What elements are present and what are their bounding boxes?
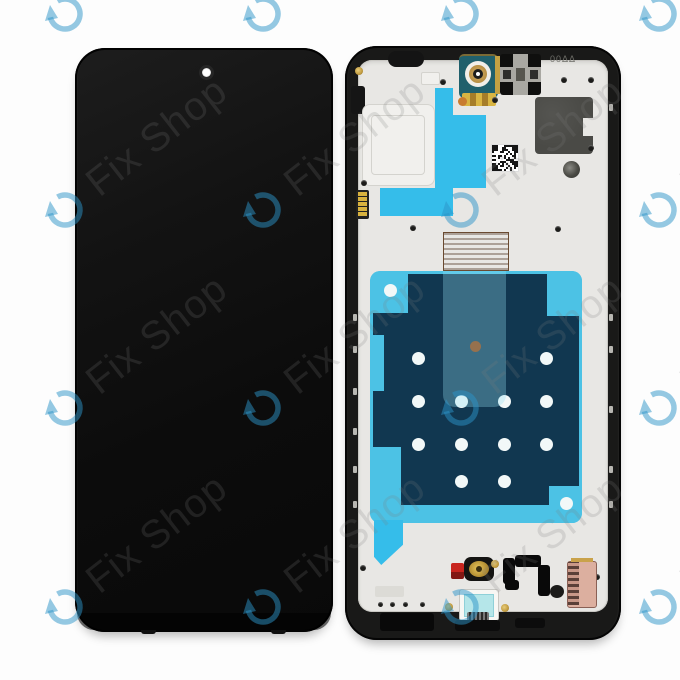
cross-slot <box>530 70 538 79</box>
frame-notch <box>609 314 613 321</box>
sheet-notch-top-right <box>547 271 582 316</box>
bottom-antenna-notch <box>271 630 286 634</box>
cross-slot <box>503 70 511 79</box>
sheet-hole <box>498 475 511 488</box>
frame-notch <box>353 388 357 395</box>
watermark-rotate-arrow-icon <box>637 188 680 232</box>
red-component <box>451 563 464 579</box>
flex-connector-gold-edge <box>571 558 593 562</box>
etched-label <box>375 586 404 597</box>
frame-notch <box>353 346 357 353</box>
speaker-mesh-hole <box>563 161 580 178</box>
watermark-brand-text: Fix Shop <box>474 0 632 10</box>
gold-contact <box>358 207 367 211</box>
frame-notch <box>353 466 357 473</box>
sheet-hole <box>455 438 468 451</box>
product-photo-stage: 00ΔΔ <box>0 0 680 680</box>
watermark-rotate-arrow-icon <box>241 0 285 36</box>
camera-lens-glint <box>476 72 480 76</box>
screw <box>588 145 594 151</box>
speaker-enclosure-outline <box>362 104 435 186</box>
earpiece-bracket <box>388 51 424 67</box>
bottom-antenna-block <box>380 613 434 631</box>
bottom-antenna-block <box>515 618 545 628</box>
gold-contact <box>358 202 367 206</box>
film-adhesive-dot <box>470 341 481 352</box>
screw <box>561 77 567 83</box>
watermark-rotate-arrow-icon <box>637 585 680 629</box>
watermark-brand-text: Fix Shop <box>276 0 434 10</box>
flex-connector-pins <box>568 562 579 605</box>
watermark-rotate-arrow-icon <box>439 0 483 36</box>
microphone-hole <box>550 585 564 598</box>
watermark-brand-text: Fix Shop <box>672 68 680 206</box>
sheet-hole <box>412 352 425 365</box>
gold-contact <box>358 192 367 196</box>
frame-notch <box>609 466 613 473</box>
frame-notch <box>353 501 357 508</box>
thermal-pad-notch <box>583 118 595 136</box>
sheet-hole <box>412 438 425 451</box>
qr-code-label <box>492 145 518 171</box>
display-back-frame: 00ΔΔ <box>345 46 621 640</box>
sheet-hole <box>560 497 573 510</box>
screw <box>555 226 561 232</box>
screw <box>410 225 416 231</box>
cyan-tape-main <box>435 115 486 188</box>
vibration-motor-center <box>476 566 482 572</box>
watermark-brand-text: Fix Shop <box>672 465 680 603</box>
etched-marking-text: 00ΔΔ <box>550 54 576 64</box>
bottom-antenna-notch <box>141 630 156 634</box>
etched-label <box>421 72 440 85</box>
contact-strip-frame <box>356 190 369 219</box>
gold-flex-cable <box>462 93 496 106</box>
frame-notch <box>353 428 357 435</box>
frame-notch <box>609 104 613 111</box>
screw <box>390 602 395 607</box>
sheet-hole <box>455 475 468 488</box>
sheet-hole <box>498 438 511 451</box>
gold-contact <box>358 197 367 201</box>
screw <box>378 602 383 607</box>
cross-center-pad <box>516 68 525 81</box>
screw <box>403 602 408 607</box>
sheet-hole <box>540 395 553 408</box>
cyan-tape-tab <box>435 88 453 115</box>
punch-hole-camera <box>202 68 211 77</box>
screw <box>440 79 446 85</box>
adhesive-sheet <box>370 271 582 523</box>
cyan-tape-arm <box>380 188 453 216</box>
protective-film-strip <box>443 271 506 407</box>
sheet-hole <box>384 284 397 297</box>
watermark-rotate-arrow-icon <box>637 0 680 36</box>
copper-connector-strip <box>443 232 509 271</box>
screw <box>420 602 425 607</box>
flex-solder-dot <box>458 97 467 106</box>
watermark-rotate-arrow-icon <box>637 386 680 430</box>
screw <box>361 180 367 186</box>
screw <box>355 67 363 75</box>
watermark-brand-text: Fix Shop <box>672 266 680 404</box>
watermark-brand-text: Fix Shop <box>78 0 236 10</box>
frame-notch <box>609 346 613 353</box>
watermark-brand-text: Fix Shop <box>672 0 680 10</box>
screw <box>492 97 498 103</box>
display-bottom-bezel <box>77 613 331 630</box>
frame-notch <box>609 501 613 508</box>
sheet-left-step <box>370 335 384 391</box>
screw <box>491 560 499 568</box>
sheet-hole <box>540 352 553 365</box>
etched-line <box>371 115 425 175</box>
frame-notch <box>353 314 357 321</box>
bottom-bracket <box>538 565 550 596</box>
sheet-hole <box>412 395 425 408</box>
screw <box>588 77 594 83</box>
sheet-bottom-band <box>373 505 579 523</box>
sensor-cross-component <box>500 54 541 95</box>
screw <box>445 603 453 611</box>
sheet-hole <box>540 438 553 451</box>
gold-contact <box>358 212 367 216</box>
screw <box>501 604 509 612</box>
watermark-rotate-arrow-icon <box>43 0 87 36</box>
bottom-antenna-block <box>455 620 500 631</box>
frame-notch <box>609 406 613 413</box>
bottom-bracket <box>515 555 541 567</box>
screw <box>360 565 366 571</box>
bottom-bracket <box>505 580 519 590</box>
display-front-panel <box>75 48 333 632</box>
